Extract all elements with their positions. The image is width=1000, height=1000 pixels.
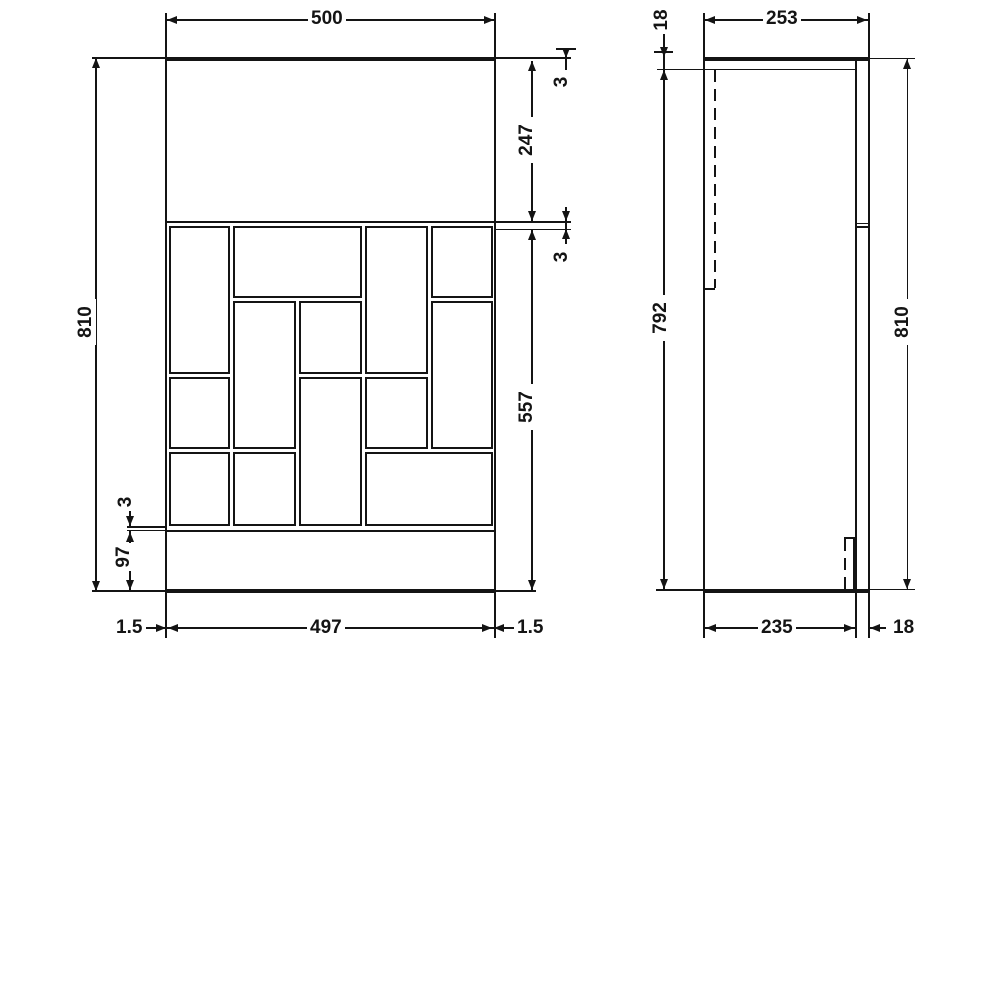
arrowhead bbox=[494, 624, 504, 632]
dim-label-810-left: 810 bbox=[76, 299, 96, 345]
arrowhead bbox=[706, 624, 716, 632]
hidden-edge-foot-line bbox=[704, 288, 715, 290]
arrowhead bbox=[528, 230, 536, 240]
brick-panel bbox=[365, 226, 428, 374]
brick-panel bbox=[233, 301, 296, 449]
side-view-body bbox=[703, 57, 857, 592]
arrowhead bbox=[903, 579, 911, 589]
brick-panel bbox=[365, 452, 493, 526]
dim-label-497: 497 bbox=[307, 618, 345, 638]
extension-line bbox=[703, 593, 705, 638]
arrowhead bbox=[482, 624, 492, 632]
dim-label-1p5-left: 1.5 bbox=[113, 618, 145, 638]
dim-label-97: 97 bbox=[114, 543, 134, 571]
back-panel-joint-line bbox=[855, 226, 870, 228]
technical-drawing-page: 500 810 3 247 3 557 3 97 497 1.5 1.5 bbox=[0, 0, 1000, 1000]
arrowhead bbox=[528, 61, 536, 71]
arrowhead bbox=[92, 581, 100, 591]
dim-label-18-top: 18 bbox=[652, 6, 672, 34]
extension-line bbox=[496, 57, 571, 59]
arrowhead bbox=[870, 624, 880, 632]
dim-label-1p5-right: 1.5 bbox=[514, 618, 546, 638]
extension-line bbox=[870, 589, 915, 591]
arrowhead bbox=[562, 229, 570, 239]
dim-label-235: 235 bbox=[758, 618, 796, 638]
dim-label-500: 500 bbox=[308, 9, 346, 29]
brick-panel bbox=[169, 226, 231, 374]
arrowhead bbox=[660, 579, 668, 589]
brick-panel bbox=[299, 301, 362, 374]
extension-line bbox=[127, 530, 166, 532]
arrowhead bbox=[562, 48, 570, 58]
back-notch-side-line bbox=[853, 537, 855, 590]
brick-panel bbox=[365, 377, 428, 450]
brick-panel bbox=[431, 226, 493, 299]
arrowhead bbox=[660, 47, 668, 57]
dim-label-247: 247 bbox=[517, 117, 537, 163]
dim-label-792: 792 bbox=[651, 295, 671, 341]
dim-label-3-mid: 3 bbox=[552, 248, 572, 266]
back-panel-joint-line bbox=[855, 223, 870, 225]
arrowhead bbox=[528, 211, 536, 221]
brick-panel bbox=[233, 226, 362, 299]
arrowhead bbox=[167, 16, 177, 24]
brick-panel bbox=[169, 377, 231, 450]
arrowhead bbox=[903, 59, 911, 69]
arrowhead bbox=[126, 580, 134, 590]
arrowhead bbox=[562, 211, 570, 221]
dim-label-3-top: 3 bbox=[552, 73, 572, 91]
hidden-edge-dashed-line bbox=[714, 70, 716, 288]
side-top-line bbox=[703, 57, 870, 61]
arrowhead bbox=[844, 624, 854, 632]
dim-label-253: 253 bbox=[763, 9, 801, 29]
arrowhead bbox=[660, 70, 668, 80]
side-back-panel-rear-line bbox=[868, 61, 870, 592]
arrowhead bbox=[156, 624, 166, 632]
extension-line bbox=[868, 13, 870, 57]
arrowhead bbox=[168, 624, 178, 632]
side-back-panel-front-line bbox=[855, 61, 857, 592]
arrowhead bbox=[705, 16, 715, 24]
extension-line bbox=[127, 526, 166, 528]
arrowhead bbox=[857, 16, 867, 24]
brick-panel bbox=[299, 377, 362, 526]
extension-line bbox=[855, 593, 857, 638]
front-plinth-top-line bbox=[166, 530, 495, 532]
dim-label-3-plinth: 3 bbox=[116, 493, 136, 511]
arrowhead bbox=[528, 580, 536, 590]
extension-line bbox=[656, 589, 703, 591]
arrowhead bbox=[92, 58, 100, 68]
extension-line bbox=[92, 57, 165, 59]
dim-label-18-bottom: 18 bbox=[890, 618, 917, 638]
side-worktop-underside-line bbox=[657, 69, 857, 71]
brick-panel bbox=[431, 301, 493, 449]
extension-line bbox=[496, 590, 536, 592]
arrowhead bbox=[126, 516, 134, 526]
arrowhead bbox=[126, 532, 134, 542]
extension-line bbox=[494, 13, 496, 57]
dim-label-810-right: 810 bbox=[893, 299, 913, 345]
brick-panel bbox=[233, 452, 296, 526]
extension-line bbox=[92, 590, 166, 592]
extension-line bbox=[496, 221, 571, 223]
dim-label-557: 557 bbox=[517, 384, 537, 430]
brick-panel bbox=[169, 452, 231, 526]
front-door-divider-line bbox=[166, 221, 495, 223]
arrowhead bbox=[484, 16, 494, 24]
back-notch-dashed-line bbox=[844, 539, 846, 590]
